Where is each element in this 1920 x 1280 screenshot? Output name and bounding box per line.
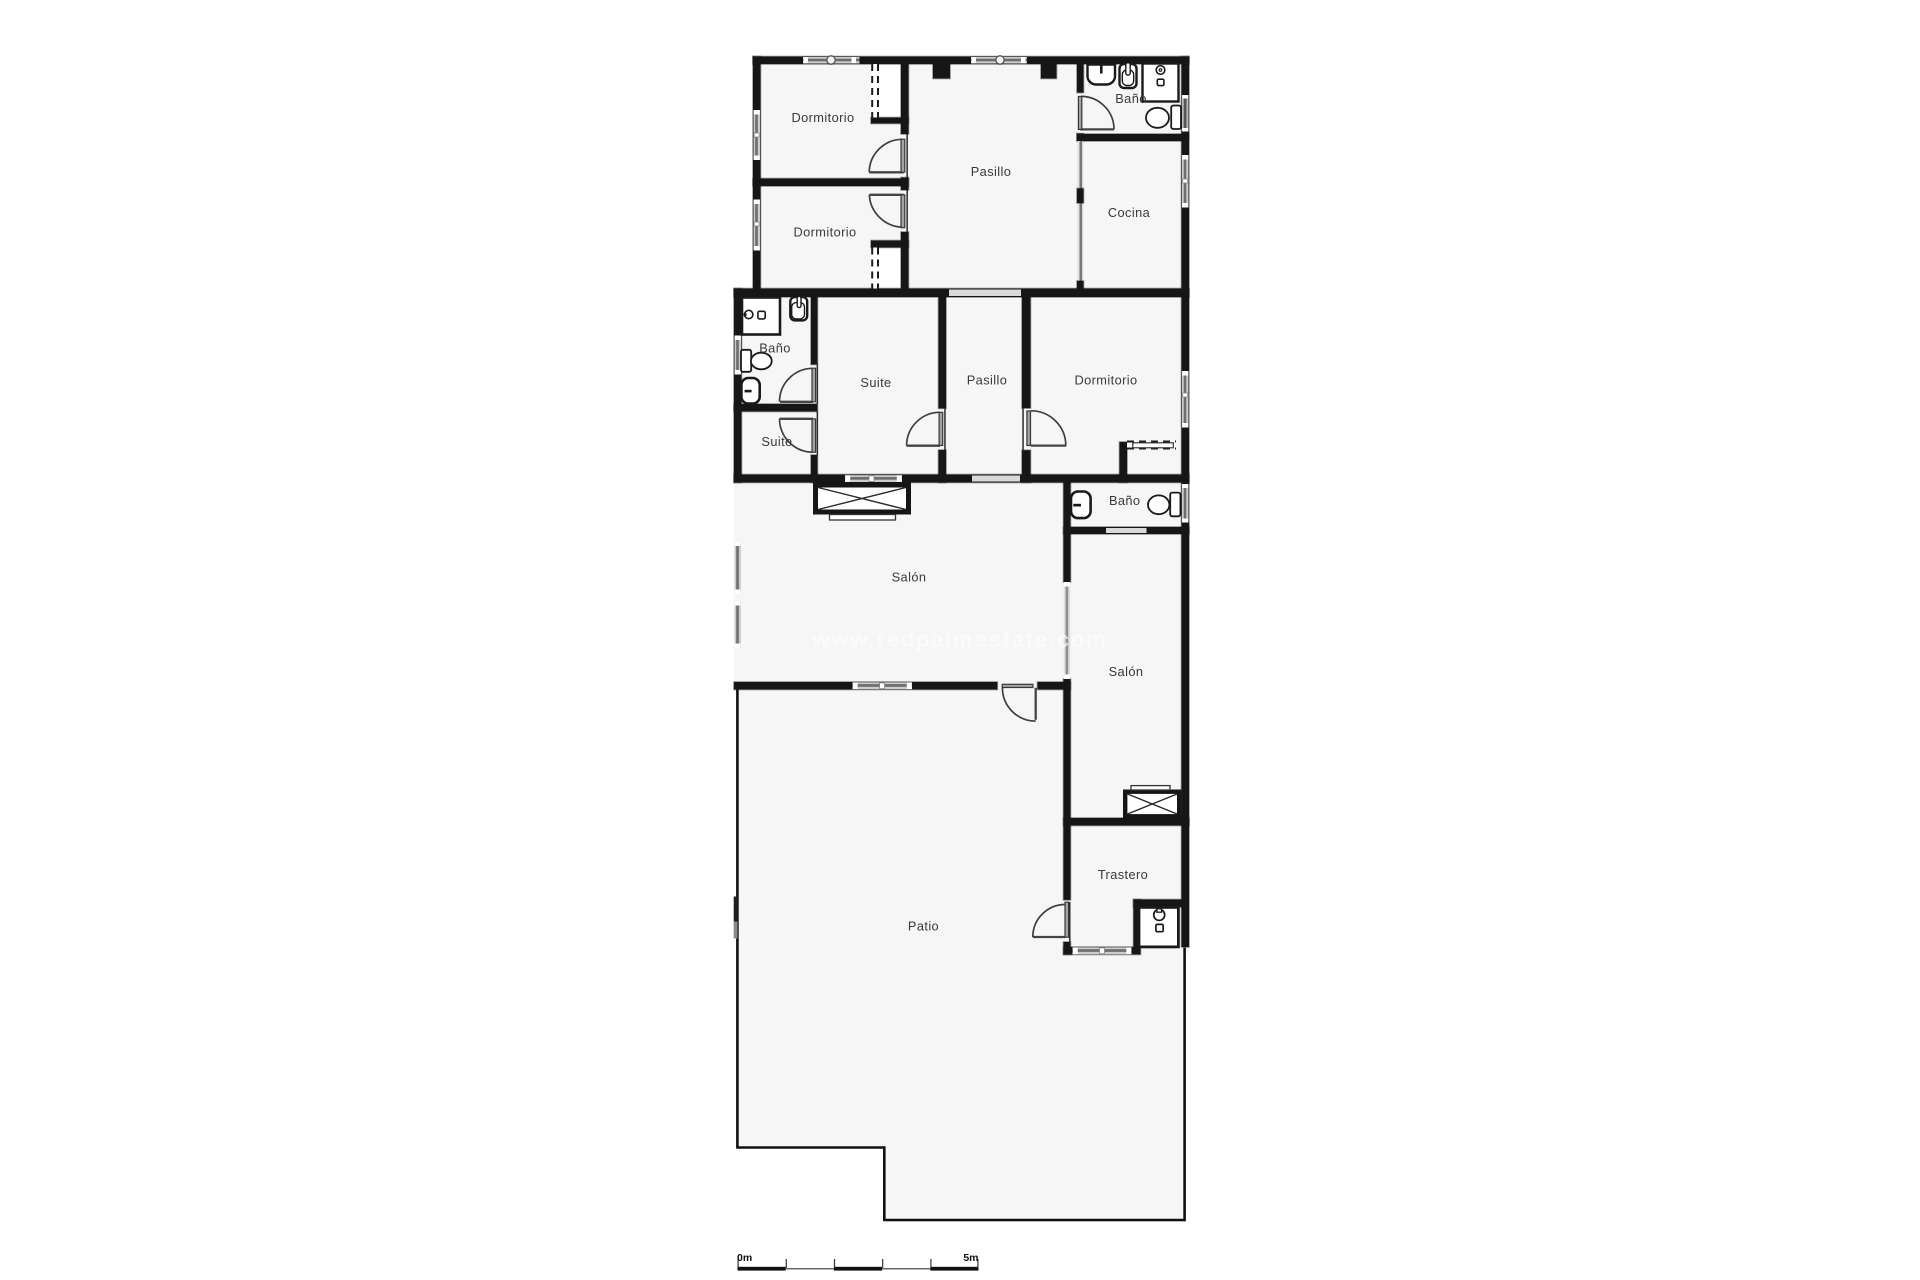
svg-text:Suite: Suite	[761, 434, 792, 449]
svg-text:Salón: Salón	[892, 570, 927, 585]
svg-text:Trastero: Trastero	[1098, 867, 1148, 882]
svg-text:Salón: Salón	[1109, 664, 1144, 679]
svg-text:5m: 5m	[963, 1252, 978, 1264]
svg-text:Pasillo: Pasillo	[971, 164, 1012, 179]
svg-text:Dormitorio: Dormitorio	[793, 225, 856, 240]
svg-text:Suite: Suite	[860, 375, 891, 390]
svg-text:Baño: Baño	[1115, 91, 1147, 106]
svg-text:Dormitorio: Dormitorio	[1074, 373, 1137, 388]
svg-text:Patio: Patio	[908, 919, 939, 934]
svg-text:Baño: Baño	[1109, 493, 1141, 508]
svg-text:Pasillo: Pasillo	[967, 373, 1008, 388]
svg-text:0m: 0m	[737, 1252, 752, 1264]
svg-text:Dormitorio: Dormitorio	[791, 110, 854, 125]
svg-text:www.redpalmestate.com: www.redpalmestate.com	[812, 627, 1108, 652]
svg-text:Cocina: Cocina	[1108, 205, 1151, 220]
svg-text:Baño: Baño	[759, 341, 791, 356]
